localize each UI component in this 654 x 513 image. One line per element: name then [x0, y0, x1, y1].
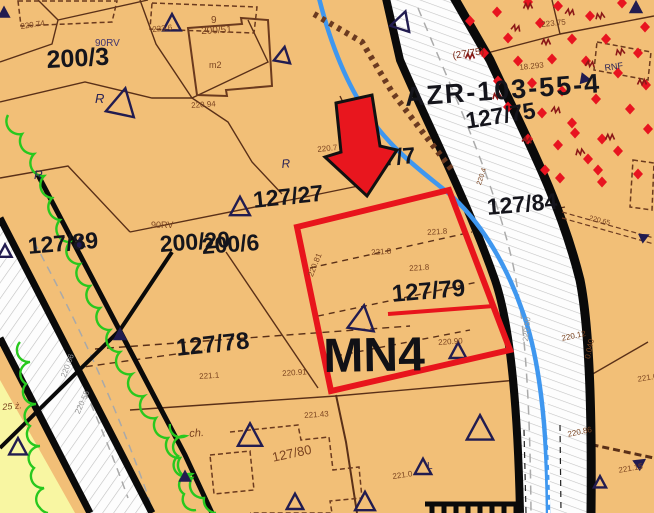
- zone-diamond-icon: [583, 154, 593, 165]
- survey-triangle-icon: [415, 459, 432, 474]
- zone-diamond-icon: [601, 34, 611, 45]
- zone-diamond-icon: [547, 54, 557, 65]
- survey-triangle-icon: [450, 343, 467, 358]
- zone-diamond-icon: [613, 146, 623, 157]
- zone-diamond-icon: [613, 68, 623, 79]
- zone-diamond-icon: [585, 11, 595, 22]
- zigzag-mark-icon: [606, 135, 615, 140]
- zone-diamond-icon: [492, 7, 502, 18]
- zone-diamond-icon: [535, 18, 545, 29]
- survey-triangle-icon: [467, 415, 493, 439]
- survey-triangle-icon: [355, 492, 375, 510]
- zone-diamond-icon: [570, 128, 580, 139]
- zone-diamond-icon: [513, 56, 523, 67]
- zone-diamond-icon: [593, 165, 603, 176]
- survey-triangle-icon: [594, 476, 606, 487]
- survey-triangle-icon: [106, 85, 139, 117]
- zoning-map-canvas: 200/3AZR-103-55-4127/75127/7127/84127/27…: [0, 0, 654, 513]
- zone-diamond-icon: [625, 104, 635, 115]
- zone-diamond-icon: [640, 22, 650, 33]
- zone-diamond-icon: [591, 94, 601, 105]
- zigzag-mark-icon: [551, 107, 561, 113]
- zone-diamond-icon: [643, 124, 653, 135]
- survey-triangle-icon: [348, 303, 378, 331]
- zone-diamond-icon: [537, 108, 547, 119]
- zone-diamond-icon: [617, 0, 627, 9]
- survey-triangle-icon: [163, 14, 181, 30]
- zone-diamond-icon: [503, 33, 513, 44]
- zone-diamond-icon: [567, 118, 577, 129]
- survey-triangle-icon: [287, 494, 304, 509]
- zone-diamond-icon: [633, 48, 643, 59]
- zone-diamond-icon: [597, 177, 607, 188]
- survey-triangle-filled-icon: [0, 6, 11, 18]
- map-linework: [0, 0, 654, 513]
- survey-triangle-filled-icon: [629, 0, 643, 13]
- zigzag-mark-icon: [575, 149, 585, 155]
- zigzag-mark-icon: [565, 9, 575, 15]
- zigzag-mark-icon: [595, 13, 605, 19]
- zigzag-mark-icon: [615, 49, 625, 56]
- zone-diamond-icon: [567, 34, 577, 45]
- zone-diamond-icon: [553, 140, 563, 151]
- zigzag-mark-icon: [542, 40, 551, 45]
- parcel-label-underline: [388, 306, 494, 314]
- zigzag-mark-icon: [511, 24, 521, 31]
- survey-triangle-icon: [230, 197, 250, 215]
- survey-triangle-icon: [238, 423, 262, 445]
- zone-diamond-icon: [557, 86, 567, 97]
- survey-triangle-icon: [274, 45, 293, 63]
- zone-diamond-icon: [527, 78, 537, 89]
- zone-diamond-icon: [633, 169, 643, 180]
- right-road: [385, 0, 591, 513]
- survey-triangle-filled-icon: [580, 72, 593, 86]
- zone-diamond-icon: [555, 173, 565, 184]
